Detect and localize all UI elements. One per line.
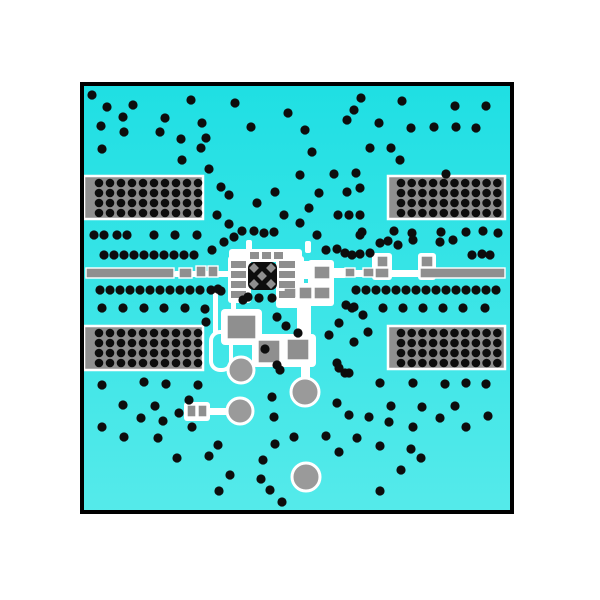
- via: [450, 401, 459, 410]
- via: [256, 474, 265, 483]
- via: [193, 380, 202, 389]
- via: [355, 183, 364, 192]
- block-via: [429, 339, 438, 348]
- block-via: [397, 209, 406, 218]
- block-via: [161, 209, 170, 218]
- via: [344, 410, 353, 419]
- via: [349, 337, 358, 346]
- block-via: [482, 349, 491, 358]
- via: [119, 250, 128, 259]
- via: [269, 412, 278, 421]
- block-via: [440, 339, 449, 348]
- via: [216, 182, 225, 191]
- via: [329, 169, 338, 178]
- via: [450, 101, 459, 110]
- pad: [187, 405, 196, 417]
- block-via: [194, 339, 203, 348]
- block-via: [440, 349, 449, 358]
- block-via: [183, 179, 192, 188]
- via: [477, 249, 486, 258]
- block-via: [194, 209, 203, 218]
- via: [332, 244, 341, 253]
- mask-opening: [231, 300, 236, 312]
- block-via: [139, 359, 148, 368]
- via: [365, 143, 374, 152]
- block-via: [461, 209, 470, 218]
- block-via: [172, 199, 181, 208]
- via: [172, 453, 181, 462]
- via: [237, 226, 246, 235]
- via: [384, 417, 393, 426]
- via: [386, 143, 395, 152]
- block-via: [472, 199, 481, 208]
- block-via: [418, 209, 427, 218]
- via: [431, 285, 440, 294]
- via: [471, 285, 480, 294]
- block-via: [472, 349, 481, 358]
- via: [349, 105, 358, 114]
- ic-left-pad: [231, 271, 246, 278]
- pad: [299, 287, 312, 299]
- via: [395, 155, 404, 164]
- testpoint-circle: [291, 378, 319, 406]
- block-via: [493, 329, 502, 338]
- block-via: [95, 179, 104, 188]
- via: [483, 411, 492, 420]
- block-via: [407, 209, 416, 218]
- block-via: [183, 349, 192, 358]
- via: [258, 455, 267, 464]
- via: [281, 321, 290, 330]
- via: [408, 378, 417, 387]
- block-via: [161, 359, 170, 368]
- via: [212, 210, 221, 219]
- block-via: [161, 179, 170, 188]
- mask-opening: [305, 241, 311, 253]
- via: [109, 250, 118, 259]
- block-via: [172, 189, 181, 198]
- block-via: [106, 359, 115, 368]
- pad: [363, 268, 374, 277]
- block-via: [429, 209, 438, 218]
- block-via: [139, 209, 148, 218]
- block-via: [407, 189, 416, 198]
- block-via: [95, 339, 104, 348]
- via: [279, 210, 288, 219]
- pad: [345, 268, 355, 277]
- via: [321, 431, 330, 440]
- block-via: [450, 189, 459, 198]
- pcb-screenshot: [0, 0, 600, 600]
- via: [461, 227, 470, 236]
- via: [155, 285, 164, 294]
- via: [187, 422, 196, 431]
- via: [161, 379, 170, 388]
- via: [153, 433, 162, 442]
- via: [351, 168, 360, 177]
- via: [192, 230, 201, 239]
- block-via: [493, 189, 502, 198]
- via: [99, 230, 108, 239]
- via: [97, 380, 106, 389]
- via: [401, 285, 410, 294]
- block-via: [150, 199, 159, 208]
- block-via: [161, 329, 170, 338]
- via: [289, 432, 298, 441]
- block-via: [139, 339, 148, 348]
- block-via: [106, 179, 115, 188]
- via: [207, 245, 216, 254]
- via: [352, 433, 361, 442]
- via: [184, 395, 193, 404]
- via: [408, 235, 417, 244]
- block-via: [397, 179, 406, 188]
- block-via: [450, 209, 459, 218]
- pad: [179, 268, 192, 278]
- block-via: [461, 199, 470, 208]
- via: [139, 250, 148, 259]
- block-via: [397, 339, 406, 348]
- block-via: [472, 179, 481, 188]
- via: [180, 303, 189, 312]
- via: [224, 190, 233, 199]
- via: [355, 230, 364, 239]
- via: [159, 303, 168, 312]
- block-via: [440, 329, 449, 338]
- via: [170, 230, 179, 239]
- via: [102, 102, 111, 111]
- block-via: [493, 199, 502, 208]
- via: [451, 285, 460, 294]
- block-via: [472, 189, 481, 198]
- block-via: [172, 359, 181, 368]
- via: [361, 285, 370, 294]
- block-via: [128, 179, 137, 188]
- via: [267, 293, 276, 302]
- via: [139, 377, 148, 386]
- via: [293, 328, 302, 337]
- block-via: [161, 189, 170, 198]
- block-via: [117, 179, 126, 188]
- ic-top-pad: [274, 252, 283, 259]
- via: [356, 93, 365, 102]
- via: [204, 164, 213, 173]
- block-via: [429, 359, 438, 368]
- via: [365, 248, 374, 257]
- block-via: [128, 329, 137, 338]
- via: [435, 237, 444, 246]
- via: [105, 285, 114, 294]
- block-via: [128, 339, 137, 348]
- ic-left-pad: [231, 281, 246, 288]
- block-via: [482, 199, 491, 208]
- via: [135, 285, 144, 294]
- via: [179, 250, 188, 259]
- via: [196, 143, 205, 152]
- via: [375, 378, 384, 387]
- via: [213, 284, 222, 293]
- block-via: [150, 189, 159, 198]
- via: [334, 363, 343, 372]
- block-via: [407, 329, 416, 338]
- via: [272, 312, 281, 321]
- via: [363, 327, 372, 336]
- via: [408, 422, 417, 431]
- via: [396, 465, 405, 474]
- via: [333, 210, 342, 219]
- block-via: [418, 349, 427, 358]
- testpoint-circle: [227, 398, 253, 424]
- block-via: [194, 359, 203, 368]
- via: [175, 285, 184, 294]
- block-via: [150, 359, 159, 368]
- block-via: [482, 209, 491, 218]
- ic-right-pad: [279, 261, 295, 268]
- via: [160, 113, 169, 122]
- block-via: [183, 329, 192, 338]
- block-via: [493, 359, 502, 368]
- via: [374, 118, 383, 127]
- via: [441, 285, 450, 294]
- ic-top-pad: [262, 252, 271, 259]
- via: [122, 230, 131, 239]
- block-via: [461, 359, 470, 368]
- pad: [420, 268, 505, 278]
- pad: [208, 266, 218, 277]
- via: [493, 228, 502, 237]
- via: [169, 250, 178, 259]
- block-via: [418, 339, 427, 348]
- block-via: [161, 349, 170, 358]
- via: [249, 226, 258, 235]
- block-via: [172, 339, 181, 348]
- block-via: [150, 349, 159, 358]
- block-via: [429, 189, 438, 198]
- block-via: [150, 329, 159, 338]
- block-via: [194, 189, 203, 198]
- via: [304, 203, 313, 212]
- block-via: [128, 189, 137, 198]
- via: [342, 187, 351, 196]
- via: [321, 245, 330, 254]
- block-via: [482, 359, 491, 368]
- block-via: [117, 339, 126, 348]
- via: [118, 303, 127, 312]
- via: [440, 379, 449, 388]
- via: [89, 230, 98, 239]
- via: [201, 133, 210, 142]
- via: [295, 170, 304, 179]
- via: [344, 210, 353, 219]
- via: [97, 303, 106, 312]
- block-via: [450, 329, 459, 338]
- via: [149, 250, 158, 259]
- block-via: [397, 349, 406, 358]
- block-via: [397, 199, 406, 208]
- via: [204, 451, 213, 460]
- via: [381, 285, 390, 294]
- block-via: [407, 339, 416, 348]
- via: [334, 447, 343, 456]
- via: [448, 235, 457, 244]
- block-via: [139, 189, 148, 198]
- via: [312, 230, 321, 239]
- block-via: [440, 359, 449, 368]
- block-via: [450, 349, 459, 358]
- block-via: [128, 349, 137, 358]
- block-via: [128, 359, 137, 368]
- via: [406, 444, 415, 453]
- block-via: [482, 189, 491, 198]
- via: [461, 378, 470, 387]
- block-via: [407, 359, 416, 368]
- via: [411, 285, 420, 294]
- via: [128, 100, 137, 109]
- ic-right-pad: [279, 271, 295, 278]
- via: [397, 96, 406, 105]
- block-via: [117, 189, 126, 198]
- ic-top-pad: [250, 252, 259, 259]
- via: [300, 125, 309, 134]
- block-via: [95, 189, 104, 198]
- via: [145, 285, 154, 294]
- block-via: [117, 209, 126, 218]
- block-via: [128, 209, 137, 218]
- ic-left-pad: [231, 261, 246, 268]
- block-via: [440, 209, 449, 218]
- via: [99, 250, 108, 259]
- block-via: [482, 179, 491, 188]
- block-via: [95, 209, 104, 218]
- block-via: [183, 359, 192, 368]
- block-via: [150, 209, 159, 218]
- via: [481, 285, 490, 294]
- block-via: [139, 179, 148, 188]
- block-via: [172, 209, 181, 218]
- pad: [375, 268, 389, 278]
- via: [158, 416, 167, 425]
- via: [307, 147, 316, 156]
- via: [165, 285, 174, 294]
- pad: [314, 287, 330, 299]
- block-via: [493, 349, 502, 358]
- via: [225, 470, 234, 479]
- block-via: [161, 339, 170, 348]
- via: [358, 310, 367, 319]
- via: [386, 401, 395, 410]
- block-via: [194, 179, 203, 188]
- via: [391, 285, 400, 294]
- via: [478, 226, 487, 235]
- block-via: [450, 199, 459, 208]
- via: [195, 285, 204, 294]
- via: [176, 134, 185, 143]
- via: [97, 144, 106, 153]
- block-via: [95, 329, 104, 338]
- via: [136, 413, 145, 422]
- block-via: [117, 349, 126, 358]
- block-via: [106, 189, 115, 198]
- block-via: [440, 179, 449, 188]
- block-via: [418, 179, 427, 188]
- via: [481, 101, 490, 110]
- ic-right-pad: [279, 291, 295, 298]
- via: [260, 344, 269, 353]
- block-via: [472, 209, 481, 218]
- via: [344, 368, 353, 377]
- via: [438, 303, 447, 312]
- block-via: [429, 329, 438, 338]
- block-via: [429, 349, 438, 358]
- via: [383, 236, 392, 245]
- via: [159, 250, 168, 259]
- pad: [198, 405, 207, 417]
- via: [230, 98, 239, 107]
- via: [342, 115, 351, 124]
- block-via: [493, 339, 502, 348]
- via: [421, 285, 430, 294]
- via: [125, 285, 134, 294]
- block-via: [183, 339, 192, 348]
- via: [341, 300, 350, 309]
- via: [351, 285, 360, 294]
- block-via: [95, 359, 104, 368]
- via: [491, 285, 500, 294]
- via: [277, 497, 286, 506]
- via: [458, 303, 467, 312]
- via: [417, 402, 426, 411]
- via: [246, 122, 255, 131]
- block-via: [106, 339, 115, 348]
- block-via: [106, 349, 115, 358]
- block-via: [418, 329, 427, 338]
- block-via: [183, 199, 192, 208]
- via: [96, 121, 105, 130]
- mask-opening: [246, 240, 252, 252]
- via: [139, 303, 148, 312]
- via: [461, 422, 470, 431]
- block-via: [117, 329, 126, 338]
- via: [177, 155, 186, 164]
- block-via: [493, 209, 502, 218]
- via: [155, 127, 164, 136]
- block-via: [461, 329, 470, 338]
- via: [461, 285, 470, 294]
- via: [243, 292, 252, 301]
- block-via: [418, 189, 427, 198]
- ic-right-pad: [279, 281, 295, 288]
- via: [416, 453, 425, 462]
- via: [213, 440, 222, 449]
- block-via: [472, 339, 481, 348]
- block-via: [139, 329, 148, 338]
- via: [270, 439, 279, 448]
- via: [355, 249, 364, 258]
- via: [201, 317, 210, 326]
- via: [375, 441, 384, 450]
- via: [118, 400, 127, 409]
- pcb-svg: [0, 0, 600, 600]
- via: [95, 285, 104, 294]
- block-via: [194, 349, 203, 358]
- via: [485, 250, 494, 259]
- pad: [196, 266, 206, 277]
- via: [112, 230, 121, 239]
- via: [267, 392, 276, 401]
- via: [200, 304, 209, 313]
- via: [115, 285, 124, 294]
- via: [467, 250, 476, 259]
